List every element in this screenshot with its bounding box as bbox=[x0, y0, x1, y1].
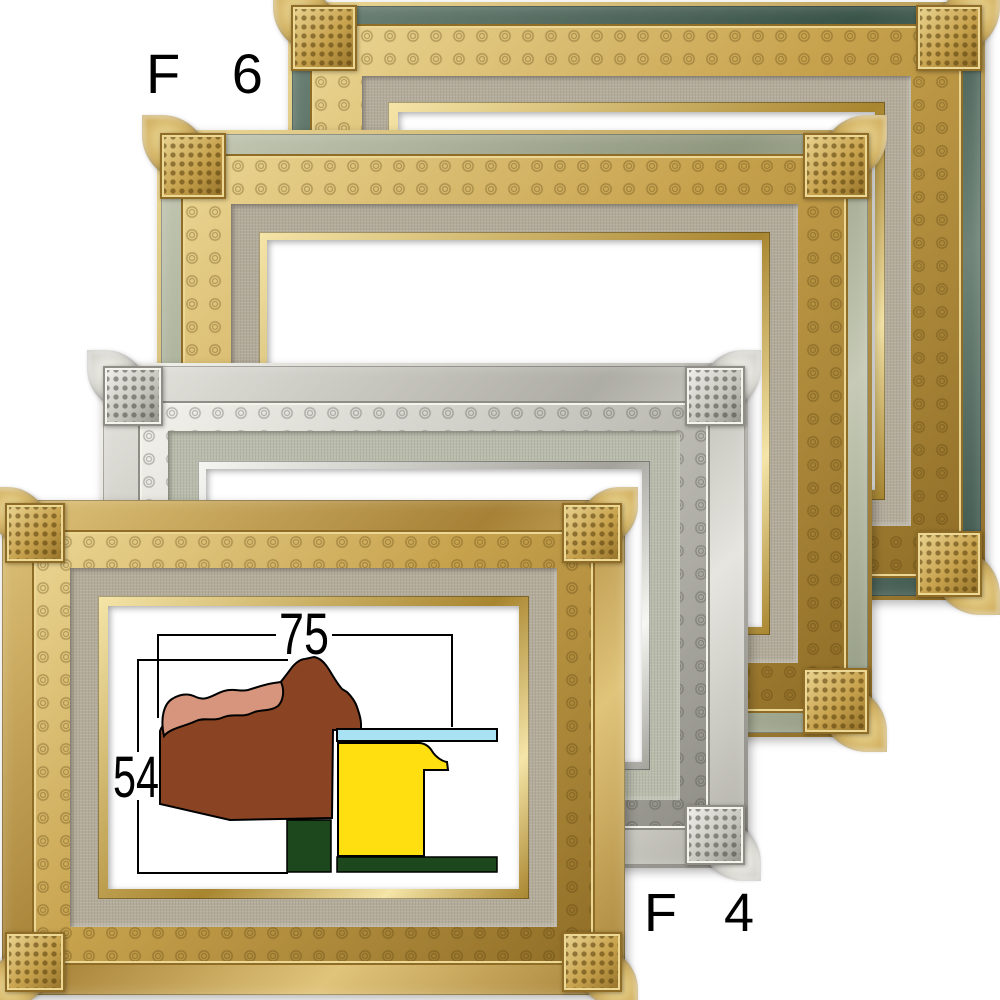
glass-sheet bbox=[337, 729, 497, 741]
corner-block bbox=[685, 805, 745, 865]
moulding-cross-section-diagram: 75 54 bbox=[108, 606, 519, 889]
corner-block bbox=[562, 503, 622, 563]
corner-block bbox=[916, 531, 982, 597]
corner-block bbox=[562, 932, 622, 992]
corner-block bbox=[5, 932, 65, 992]
corner-block bbox=[803, 668, 869, 734]
dim-height-value: 54 bbox=[113, 745, 159, 810]
corner-block bbox=[916, 5, 982, 71]
corner-block bbox=[103, 366, 163, 426]
corner-block bbox=[5, 503, 65, 563]
wedge-block-bottom bbox=[337, 857, 497, 872]
corner-block bbox=[685, 366, 745, 426]
size-label-f4: F 4 bbox=[644, 886, 770, 940]
canvas-stretcher-shape bbox=[338, 743, 448, 856]
moulding-profile-shape bbox=[160, 657, 361, 820]
corner-block bbox=[291, 5, 357, 71]
corner-block bbox=[803, 133, 869, 199]
wedge-block-left bbox=[287, 820, 331, 872]
frame-product-image: F 6 F 4 75 54 bbox=[0, 0, 1000, 1000]
corner-block bbox=[160, 133, 226, 199]
dim-width-value: 75 bbox=[279, 606, 329, 667]
size-label-f6: F 6 bbox=[146, 46, 281, 102]
